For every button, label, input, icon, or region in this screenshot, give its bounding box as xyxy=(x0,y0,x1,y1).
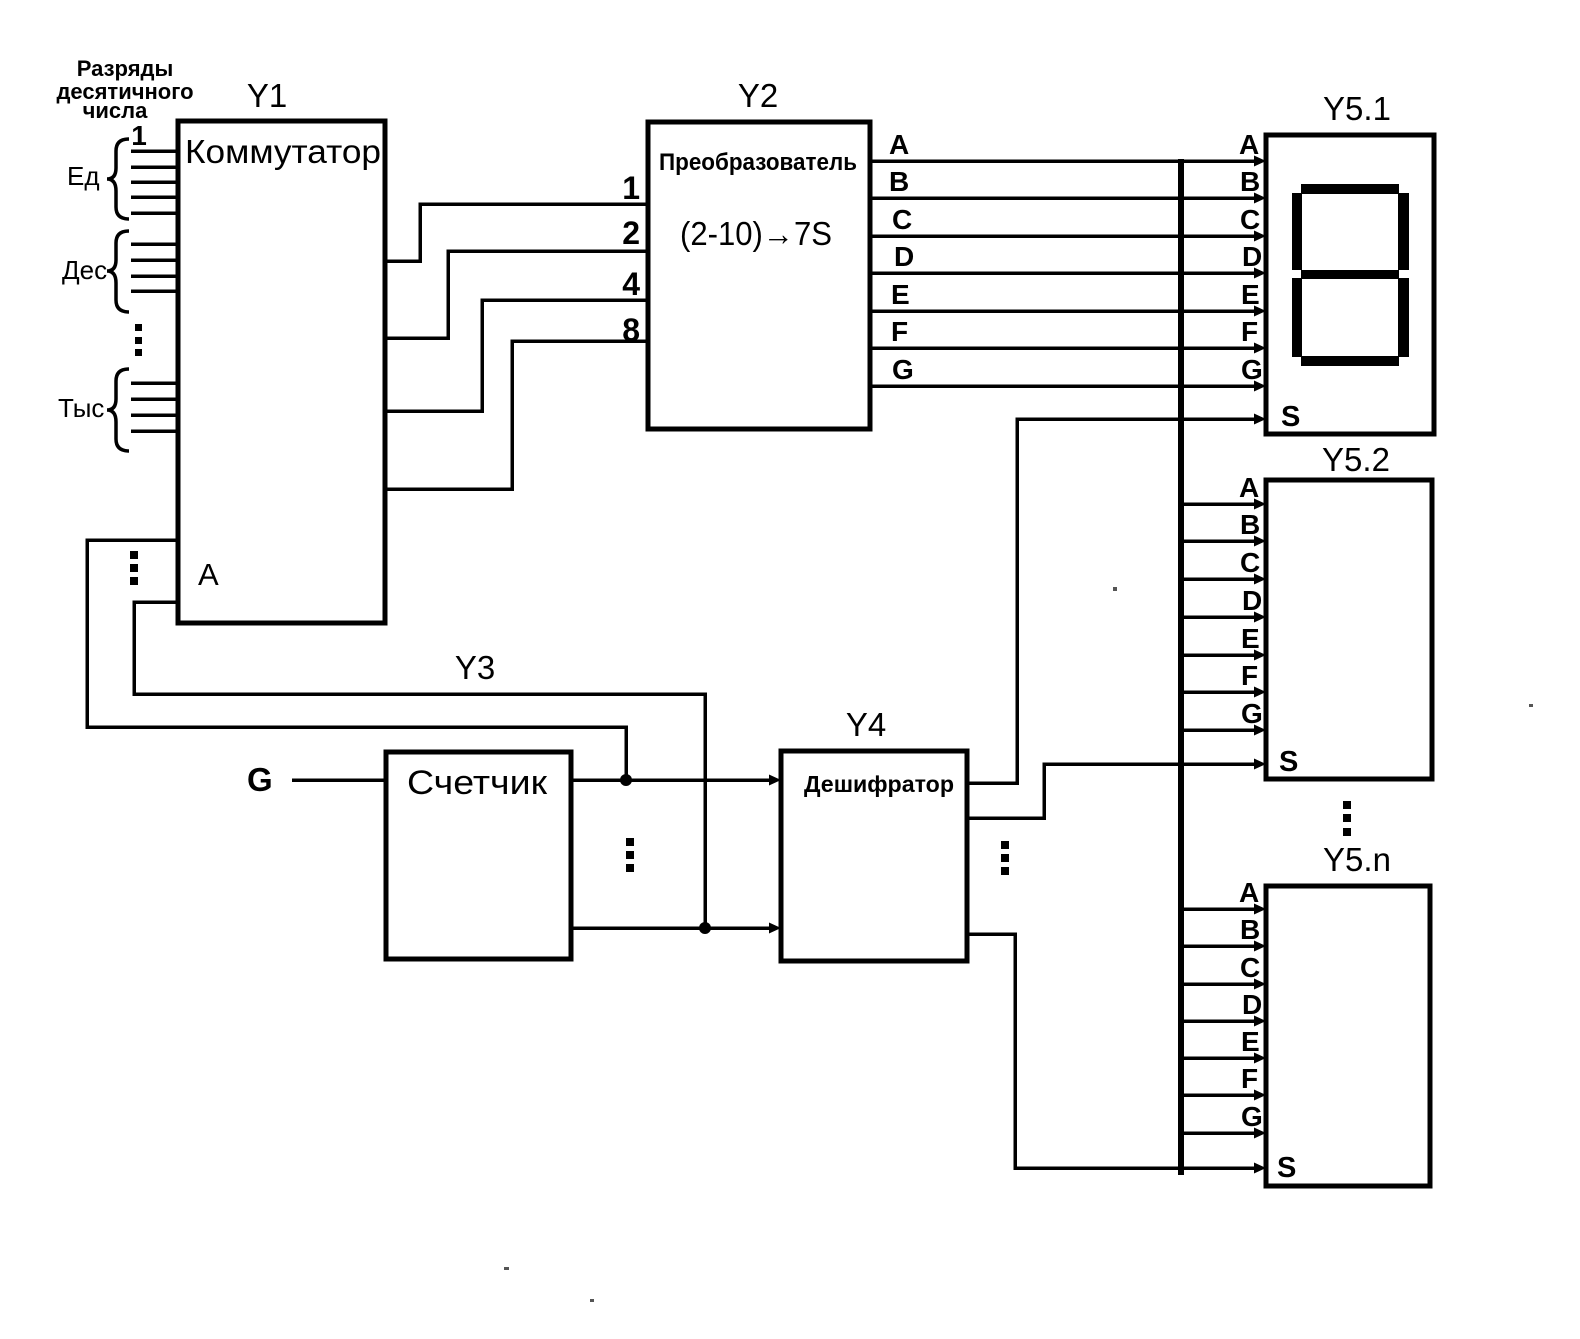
svg-text:F: F xyxy=(1241,660,1258,691)
svg-text:S: S xyxy=(1279,746,1298,778)
svg-text:Y4: Y4 xyxy=(846,706,886,743)
svg-text:G: G xyxy=(247,761,273,798)
svg-text:A: A xyxy=(198,557,219,592)
svg-text:Y5.2: Y5.2 xyxy=(1322,441,1390,478)
svg-text:1: 1 xyxy=(622,170,640,206)
svg-text:G: G xyxy=(892,354,914,385)
svg-text:A: A xyxy=(1239,877,1259,908)
svg-text:E: E xyxy=(1241,623,1260,654)
svg-text:Счетчик: Счетчик xyxy=(407,764,548,802)
svg-text:Дешифратор: Дешифратор xyxy=(804,771,954,797)
svg-text:G: G xyxy=(1241,354,1263,385)
svg-text:4: 4 xyxy=(622,266,640,302)
svg-text:C: C xyxy=(1240,547,1260,578)
svg-text:Y1: Y1 xyxy=(247,77,287,114)
svg-text:A: A xyxy=(1239,129,1259,160)
svg-text:D: D xyxy=(894,241,914,272)
svg-text:D: D xyxy=(1242,241,1262,272)
svg-text:E: E xyxy=(1241,279,1260,310)
svg-text:G: G xyxy=(1241,698,1263,729)
svg-text:Ед: Ед xyxy=(67,161,100,191)
svg-text:S: S xyxy=(1277,1152,1296,1184)
svg-text:Дес: Дес xyxy=(62,255,107,285)
svg-text:C: C xyxy=(892,204,912,235)
svg-text:D: D xyxy=(1242,989,1262,1020)
svg-text:1: 1 xyxy=(131,120,147,151)
svg-text:B: B xyxy=(889,166,909,197)
svg-text:D: D xyxy=(1242,585,1262,616)
svg-text:E: E xyxy=(891,279,910,310)
svg-text:Y5.1: Y5.1 xyxy=(1323,90,1391,127)
svg-text:Преобразователь: Преобразователь xyxy=(659,149,857,176)
svg-text:Y5.n: Y5.n xyxy=(1323,841,1391,878)
svg-text:Y2: Y2 xyxy=(738,77,778,114)
svg-text:Y3: Y3 xyxy=(455,649,495,686)
svg-text:2: 2 xyxy=(622,215,640,251)
svg-text:B: B xyxy=(1240,914,1260,945)
svg-text:G: G xyxy=(1241,1101,1263,1132)
svg-text:F: F xyxy=(1241,316,1258,347)
svg-text:Тыс: Тыс xyxy=(58,393,104,423)
svg-text:Коммутатор: Коммутатор xyxy=(185,133,381,170)
svg-text:C: C xyxy=(1240,952,1260,983)
svg-text:S: S xyxy=(1281,401,1300,433)
svg-text:8: 8 xyxy=(622,312,640,348)
svg-text:Разряды: Разряды xyxy=(77,56,174,81)
svg-text:A: A xyxy=(889,129,909,160)
svg-text:B: B xyxy=(1240,166,1260,197)
svg-text:B: B xyxy=(1240,509,1260,540)
svg-text:F: F xyxy=(891,316,908,347)
svg-text:E: E xyxy=(1241,1026,1260,1057)
svg-text:C: C xyxy=(1240,204,1260,235)
svg-text:(2-10)→7S: (2-10)→7S xyxy=(680,215,832,252)
svg-text:F: F xyxy=(1241,1063,1258,1094)
svg-text:A: A xyxy=(1239,472,1259,503)
